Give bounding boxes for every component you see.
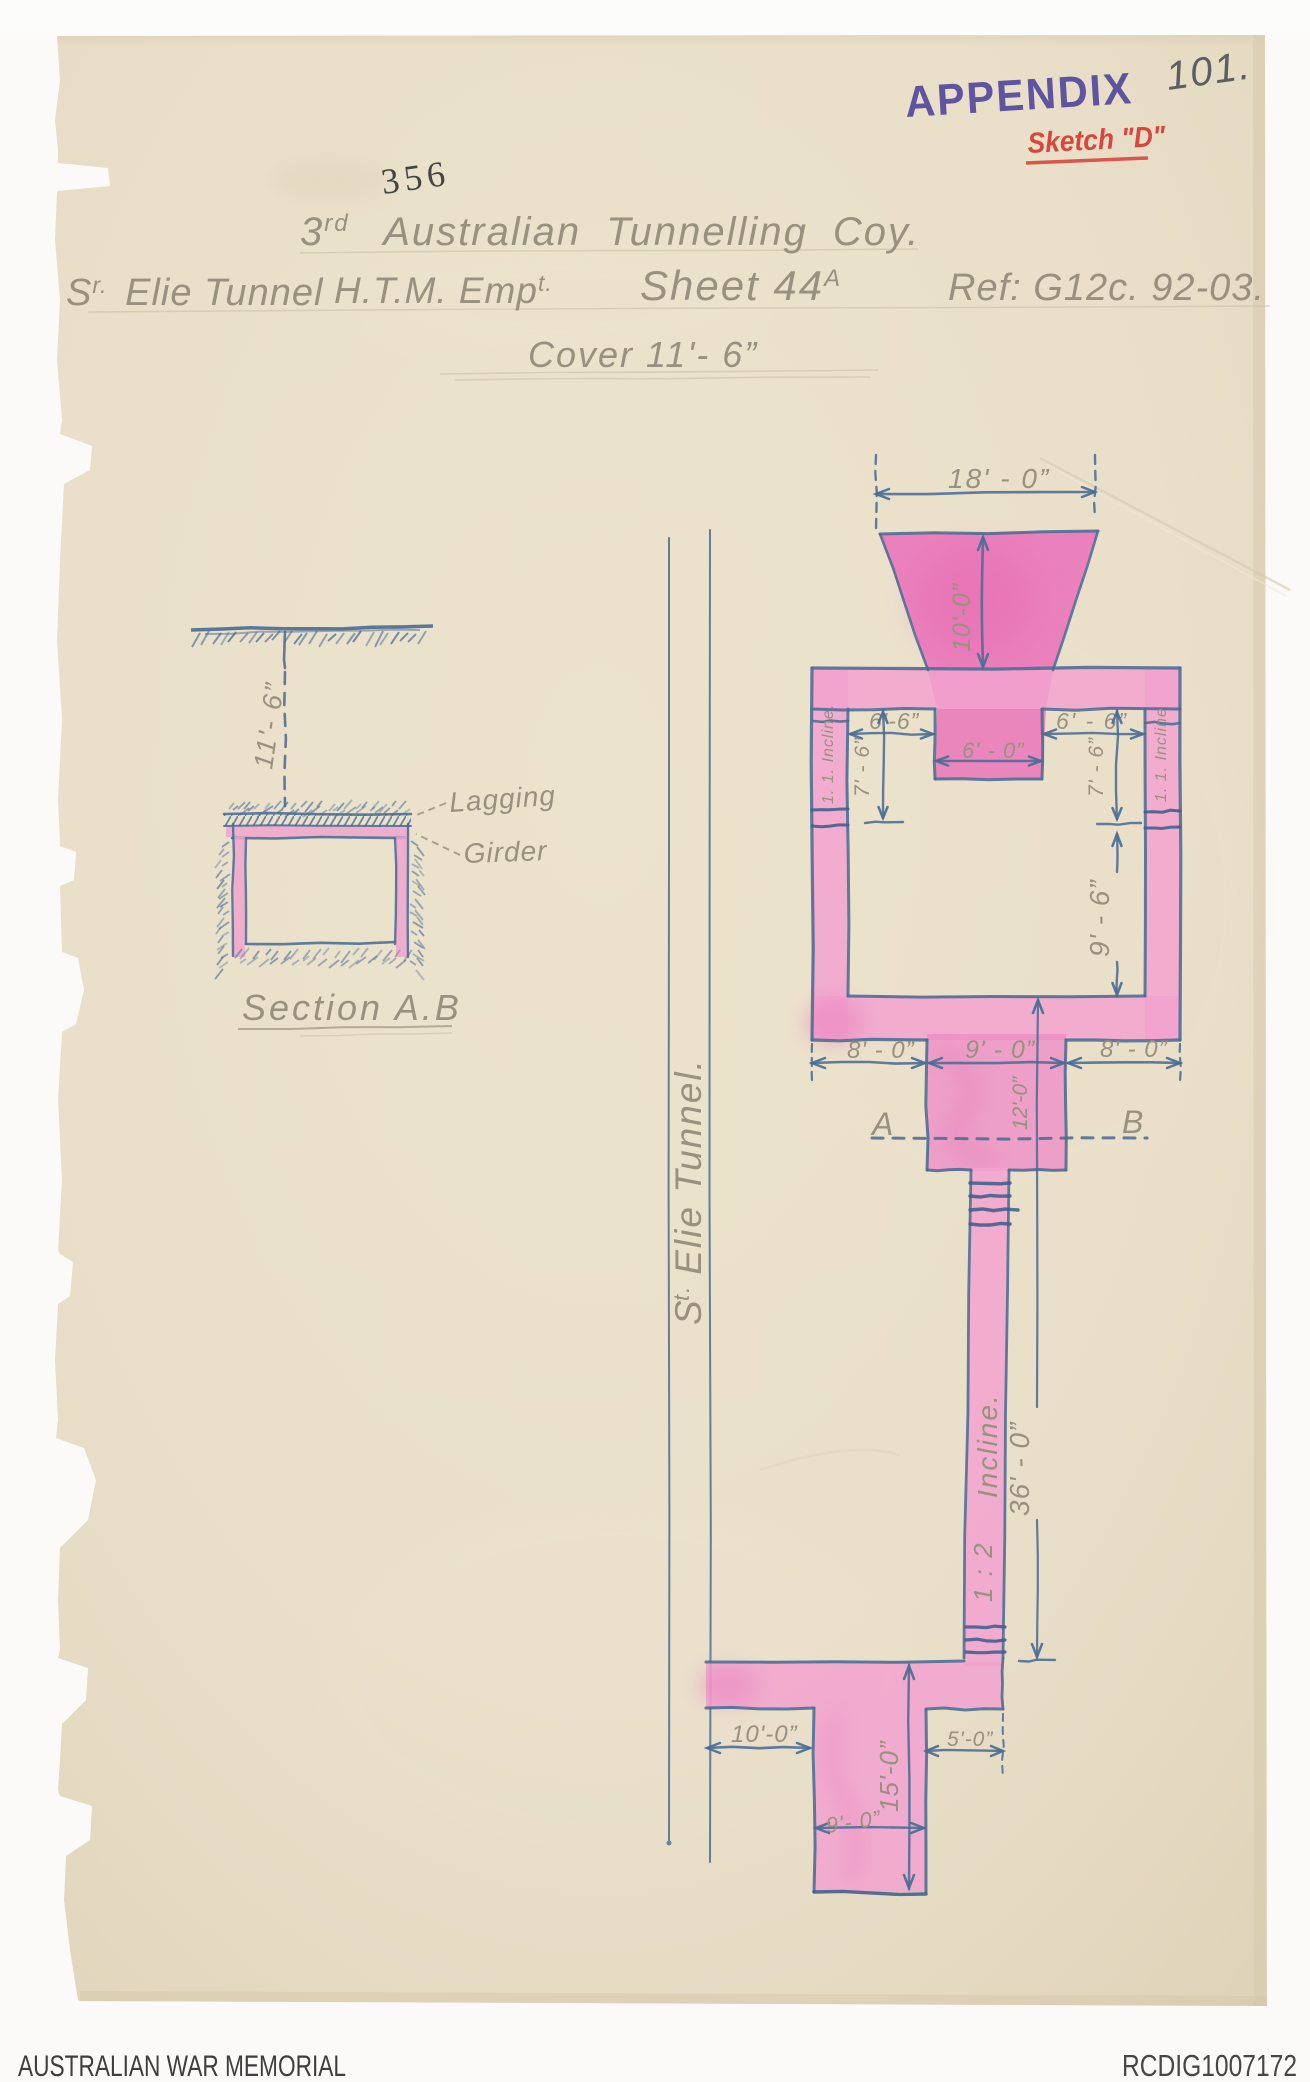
- svg-text:AUSTRALIAN WAR MEMORIAL: AUSTRALIAN WAR MEMORIAL: [18, 2050, 346, 2082]
- svg-text:RCDIG1007172: RCDIG1007172: [1122, 2048, 1297, 2082]
- svg-text:Ref: G12c. 92-03.: Ref: G12c. 92-03.: [948, 267, 1265, 309]
- svg-text:1 : 2: 1 : 2: [968, 1541, 998, 1602]
- svg-text:18' - 0”: 18' - 0”: [948, 463, 1050, 494]
- svg-text:Incline.: Incline.: [972, 1393, 1003, 1498]
- svg-text:15'-0”: 15'-0”: [874, 1740, 904, 1812]
- svg-text:6' - 0”: 6' - 0”: [962, 738, 1025, 763]
- svg-text:S: S: [668, 1299, 709, 1325]
- svg-text:Section A.B: Section A.B: [242, 987, 462, 1028]
- svg-text:1. 1. Incline.: 1. 1. Incline.: [820, 704, 837, 804]
- svg-text:Sheet 44A: Sheet 44A: [640, 262, 842, 309]
- svg-text:1. 1. Incline: 1. 1. Incline: [1153, 707, 1170, 802]
- svg-text:12'-0”: 12'-0”: [1009, 1076, 1032, 1130]
- svg-text:Cover 11'- 6”: Cover 11'- 6”: [528, 334, 758, 375]
- svg-text:t.Elie Tunnel.: t.Elie Tunnel.: [668, 1058, 709, 1301]
- svg-text:Girder: Girder: [463, 835, 548, 869]
- svg-text:10'-0”: 10'-0”: [948, 582, 976, 652]
- svg-text:6'-6”: 6'-6”: [869, 708, 920, 734]
- svg-text:B: B: [1122, 1104, 1144, 1140]
- svg-text:9' - 6”: 9' - 6”: [1084, 879, 1115, 957]
- svg-text:10'-0”: 10'-0”: [731, 1721, 798, 1748]
- svg-text:5'-0”: 5'-0”: [947, 1728, 993, 1751]
- svg-text:3rd Australian Tunnelling Coy.: 3rd Australian Tunnelling Coy.: [300, 210, 920, 254]
- svg-text:7' - 6”: 7' - 6”: [1085, 737, 1108, 797]
- svg-text:7' - 6”: 7' - 6”: [851, 737, 874, 797]
- svg-text:36' - 0”: 36' - 0”: [1004, 1421, 1035, 1516]
- svg-text:A: A: [870, 1106, 894, 1142]
- svg-text:8' - 0”: 8' - 0”: [1100, 1036, 1168, 1063]
- svg-text:8' - 0”: 8' - 0”: [847, 1037, 915, 1064]
- svg-text:H.T.M. Empt.: H.T.M. Empt.: [334, 270, 553, 311]
- svg-text:9' - 0”: 9' - 0”: [965, 1036, 1036, 1064]
